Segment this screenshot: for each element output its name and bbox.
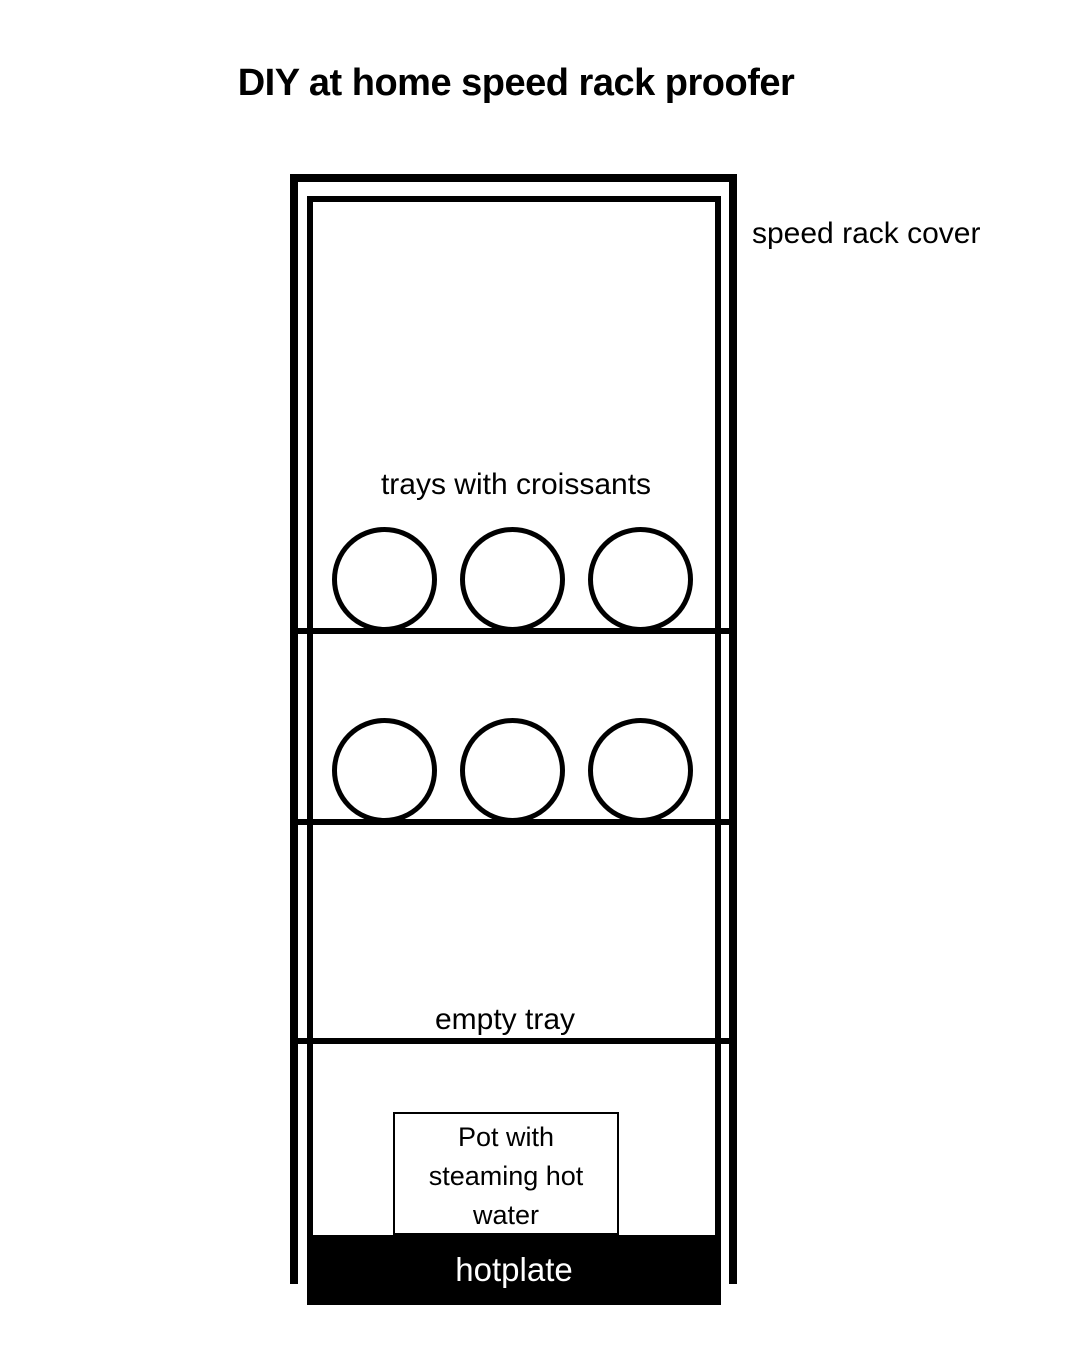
- outer-frame-top-line: [290, 174, 737, 182]
- diagram-title: DIY at home speed rack proofer: [166, 62, 866, 105]
- pot-label: Pot with steaming hot water: [406, 1118, 606, 1235]
- hotplate-label: hotplate: [455, 1251, 572, 1289]
- croissant-circle: [332, 718, 437, 823]
- proofer-diagram: DIY at home speed rack proofer speed rac…: [0, 0, 1080, 1350]
- tray-shelf-line-3: [290, 1038, 737, 1044]
- croissant-circle: [332, 527, 437, 632]
- croissant-circle: [460, 718, 565, 823]
- outer-frame-left-rail: [290, 174, 298, 1284]
- croissant-row: [332, 718, 693, 823]
- tray-shelf-line-2: [290, 819, 737, 825]
- empty-tray-label: empty tray: [300, 1003, 710, 1037]
- inner-frame-right-rail: [715, 196, 721, 1235]
- pot-box: Pot with steaming hot water: [393, 1112, 619, 1235]
- croissant-circle: [460, 527, 565, 632]
- inner-frame-left-rail: [307, 196, 313, 1235]
- croissant-circle: [588, 718, 693, 823]
- croissant-circle: [588, 527, 693, 632]
- tray-shelf-line-1: [290, 628, 737, 634]
- outer-frame-right-rail: [729, 174, 737, 1284]
- croissant-row: [332, 527, 693, 632]
- speed-rack-cover-label: speed rack cover: [752, 217, 980, 251]
- inner-frame-top-line: [307, 196, 721, 202]
- trays-with-croissants-label: trays with croissants: [310, 468, 722, 502]
- hotplate-bar: hotplate: [307, 1235, 721, 1305]
